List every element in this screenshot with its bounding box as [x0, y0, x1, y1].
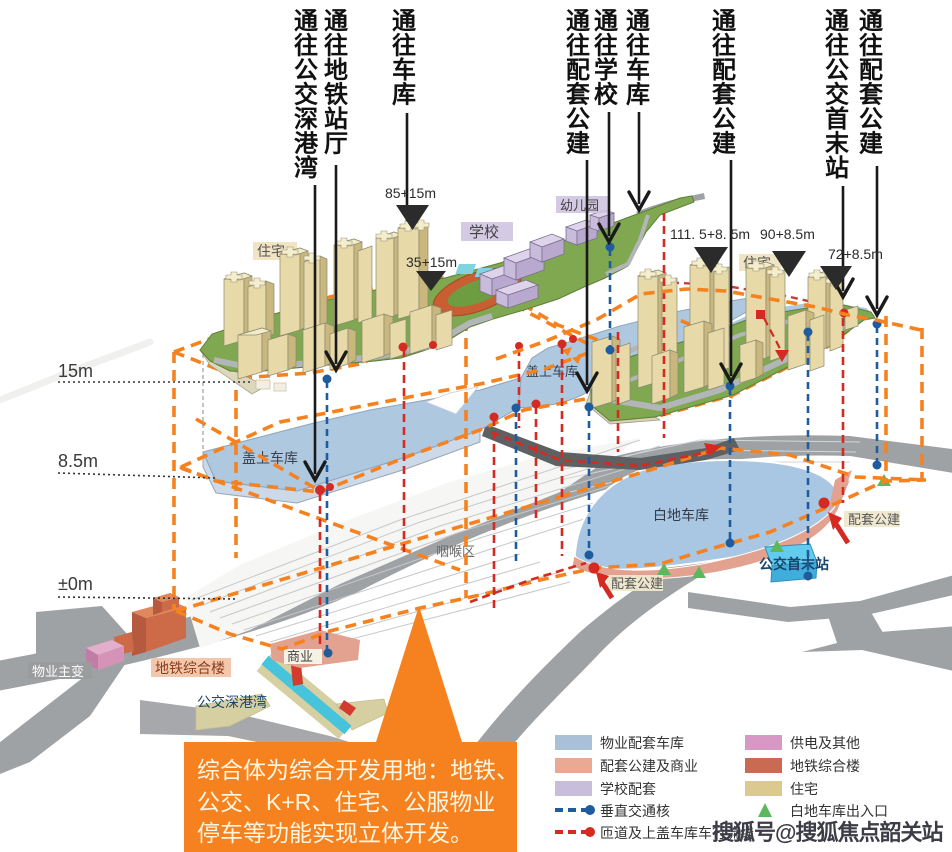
svg-text:111. 5+8. 5m: 111. 5+8. 5m [670, 226, 750, 242]
svg-text:停车等功能实现立体开发。: 停车等功能实现立体开发。 [197, 820, 473, 846]
svg-text:搜狐号@搜狐焦点韶关站: 搜狐号@搜狐焦点韶关站 [712, 820, 943, 845]
svg-text:通往公交深港湾: 通往公交深港湾 [294, 8, 319, 182]
svg-text:90+8.5m: 90+8.5m [760, 226, 815, 242]
svg-text:配套公建: 配套公建 [611, 576, 663, 591]
svg-text:通往车库: 通往车库 [392, 8, 416, 109]
svg-text:公交、K+R、住宅、公服物业: 公交、K+R、住宅、公服物业 [197, 789, 495, 815]
svg-text:住宅: 住宅 [790, 781, 818, 797]
svg-text:通往配套公建: 通往配套公建 [712, 8, 737, 158]
svg-text:白地车库: 白地车库 [653, 507, 709, 523]
svg-text:72+8.5m: 72+8.5m [828, 246, 883, 262]
svg-text:35+15m: 35+15m [406, 254, 457, 270]
svg-text:通往学校: 通往学校 [594, 8, 619, 109]
svg-text:供电及其他: 供电及其他 [790, 735, 860, 751]
svg-text:学校配套: 学校配套 [600, 781, 656, 797]
svg-text:幼儿园: 幼儿园 [560, 198, 599, 213]
svg-text:通往车库: 通往车库 [626, 8, 650, 109]
svg-text:通往地铁站厅: 通往地铁站厅 [324, 8, 348, 158]
svg-text:白地车库出入口: 白地车库出入口 [790, 803, 888, 819]
svg-text:±0m: ±0m [58, 574, 93, 594]
svg-text:综合体为综合开发用地：地铁、: 综合体为综合开发用地：地铁、 [197, 757, 519, 783]
svg-text:商业: 商业 [287, 649, 313, 664]
svg-text:地铁综合楼: 地铁综合楼 [155, 660, 225, 676]
svg-text:地铁综合楼: 地铁综合楼 [790, 758, 860, 774]
svg-text:咽喉区: 咽喉区 [436, 544, 475, 559]
svg-text:配套公建及商业: 配套公建及商业 [600, 758, 698, 774]
svg-text:8.5m: 8.5m [58, 451, 98, 471]
svg-text:物业主变: 物业主变 [32, 664, 84, 679]
svg-text:公交首末站: 公交首末站 [759, 556, 829, 572]
svg-text:85+15m: 85+15m [385, 185, 436, 201]
svg-text:学校: 学校 [469, 224, 499, 241]
svg-text:15m: 15m [58, 361, 93, 381]
svg-text:垂直交通核: 垂直交通核 [600, 803, 670, 819]
svg-text:配套公建: 配套公建 [848, 512, 900, 527]
svg-text:公交深港湾: 公交深港湾 [197, 694, 267, 710]
svg-text:通往公交首末站: 通往公交首末站 [825, 8, 850, 182]
svg-text:物业配套车库: 物业配套车库 [600, 735, 684, 751]
svg-text:通往配套公建: 通往配套公建 [566, 8, 591, 158]
svg-text:通往配套公建: 通往配套公建 [859, 8, 884, 158]
